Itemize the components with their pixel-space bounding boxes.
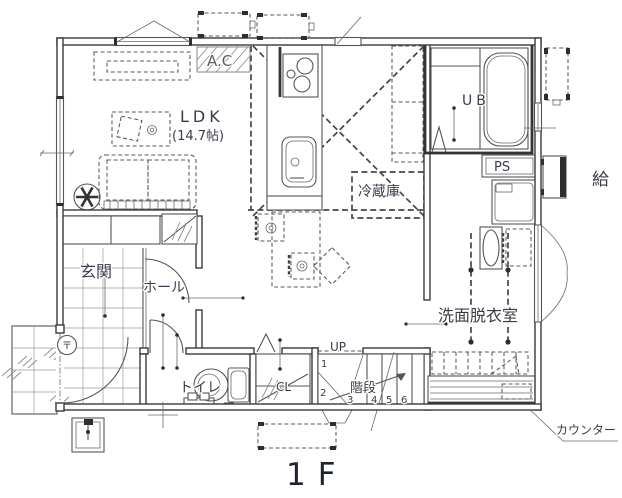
dining-chair-1 [256,214,284,241]
toilet-door-arc [150,320,183,370]
floor-plan-page: LDK (14.7帖) A.C UB PS 給 冷蔵庫 玄関 ホール トイレ C… [0,0,622,498]
outdoor-unit-2 [257,13,314,40]
dining-table [272,212,320,287]
outdoor-unit-1 [198,11,255,38]
bathtub-icon [484,53,528,146]
water-heater [541,156,566,198]
stair-step-1: 1 [321,359,327,370]
label-genkan: 玄関 [80,262,112,281]
label-washroom: 洗面脱衣室 [438,306,518,325]
laundry-pipes [468,233,510,345]
label-cl: CL [276,380,291,394]
coat-closet [162,214,197,244]
floor-plan-drawing: LDK (14.7帖) A.C UB PS 給 冷蔵庫 玄関 ホール トイレ C… [0,0,622,498]
label-water-heater: 給 [592,170,609,190]
label-ldk: LDK [180,107,224,126]
outdoor-unit-3 [544,48,570,105]
stair-step-5: 5 [386,395,392,406]
floor-title: 1F [286,457,348,493]
counter-unit [428,352,535,404]
washing-machine [492,180,536,224]
shoe-cabinet [63,216,160,244]
window-ldk-top [114,21,192,46]
hall-door-arc [145,259,189,370]
window-ub-right [535,103,542,131]
window-ldk-left [57,96,64,206]
dining-chair-2 [289,253,314,279]
plant-icon [74,184,100,210]
vanity-unit [480,227,531,269]
label-ps: PS [494,160,510,175]
window-washroom-right [535,225,568,322]
stair-step-6: 6 [401,395,407,406]
label-ac: A.C [207,52,232,70]
tv-board [94,52,190,80]
low-table [112,112,170,146]
label-refrigerator: 冷蔵庫 [358,183,400,200]
ub-door [432,106,456,152]
outdoor-unit-4 [258,422,336,450]
label-kaidan: 階段 [350,381,376,396]
entrance-step-box [72,418,104,452]
stair-step-3: 3 [347,395,353,406]
label-counter: カウンター [556,423,616,437]
label-ldk-area: (14.7帖) [172,129,224,144]
stair-step-2: 2 [320,388,326,399]
dining-chair-3 [314,248,351,285]
label-toilet: トイレ [179,380,221,396]
sofa [99,155,196,209]
label-up: UP [330,340,346,354]
label-hall: ホール [143,280,185,296]
label-ub: UB [462,93,490,109]
window-kitchen-top [335,17,361,46]
label-post-mark: 〒 [62,341,72,352]
stair-step-4: 4 [371,395,377,406]
